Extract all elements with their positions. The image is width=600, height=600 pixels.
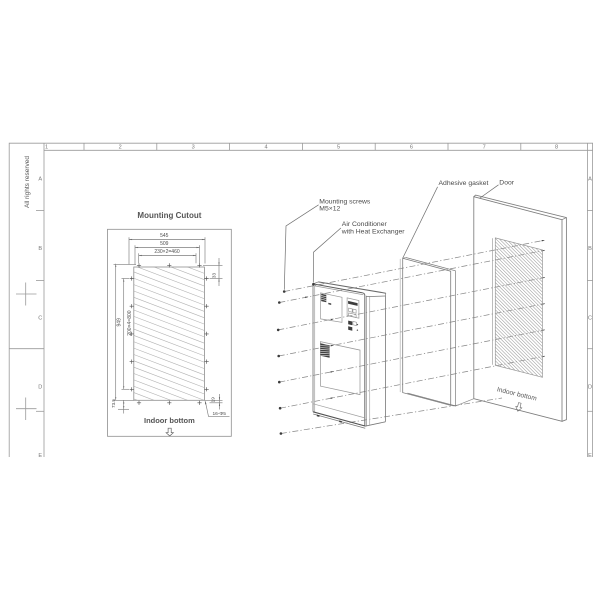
svg-text:Air Conditioner: Air Conditioner [342,221,388,228]
svg-text:B: B [588,246,592,252]
svg-text:M5×12: M5×12 [319,205,340,212]
svg-text:C: C [38,316,42,322]
svg-text:with Heat Exchanger: with Heat Exchanger [341,228,405,235]
svg-text:4: 4 [264,145,267,151]
svg-text:5: 5 [337,145,340,151]
svg-text:545: 545 [160,233,169,239]
svg-text:73.5: 73.5 [111,399,116,408]
svg-text:E: E [588,453,592,459]
svg-text:1: 1 [45,145,48,151]
svg-text:A: A [38,177,42,183]
svg-text:Adhesive gasket: Adhesive gasket [439,180,489,187]
svg-text:C: C [588,316,592,322]
svg-text:949: 949 [117,318,123,327]
svg-text:7: 7 [483,145,486,151]
svg-text:E: E [38,453,42,459]
svg-text:D: D [588,385,592,391]
svg-text:16-Φ5: 16-Φ5 [212,411,226,417]
svg-text:Door: Door [499,179,514,186]
svg-text:8: 8 [555,145,558,151]
svg-text:19: 19 [210,397,215,403]
svg-text:509: 509 [160,241,169,247]
svg-text:200×4=800: 200×4=800 [127,310,133,336]
svg-text:All rights reserved: All rights reserved [24,156,31,208]
svg-text:A: A [588,177,592,183]
svg-text:3: 3 [192,145,195,151]
svg-text:2: 2 [119,145,122,151]
svg-text:Mounting Cutout: Mounting Cutout [137,211,201,220]
svg-text:B: B [38,246,42,252]
svg-text:230×2=460: 230×2=460 [154,249,180,255]
svg-text:Mounting screws: Mounting screws [319,198,371,205]
svg-text:33: 33 [212,273,217,279]
svg-text:6: 6 [410,145,413,151]
svg-text:D: D [38,385,42,391]
svg-text:Indoor bottom: Indoor bottom [144,416,195,425]
